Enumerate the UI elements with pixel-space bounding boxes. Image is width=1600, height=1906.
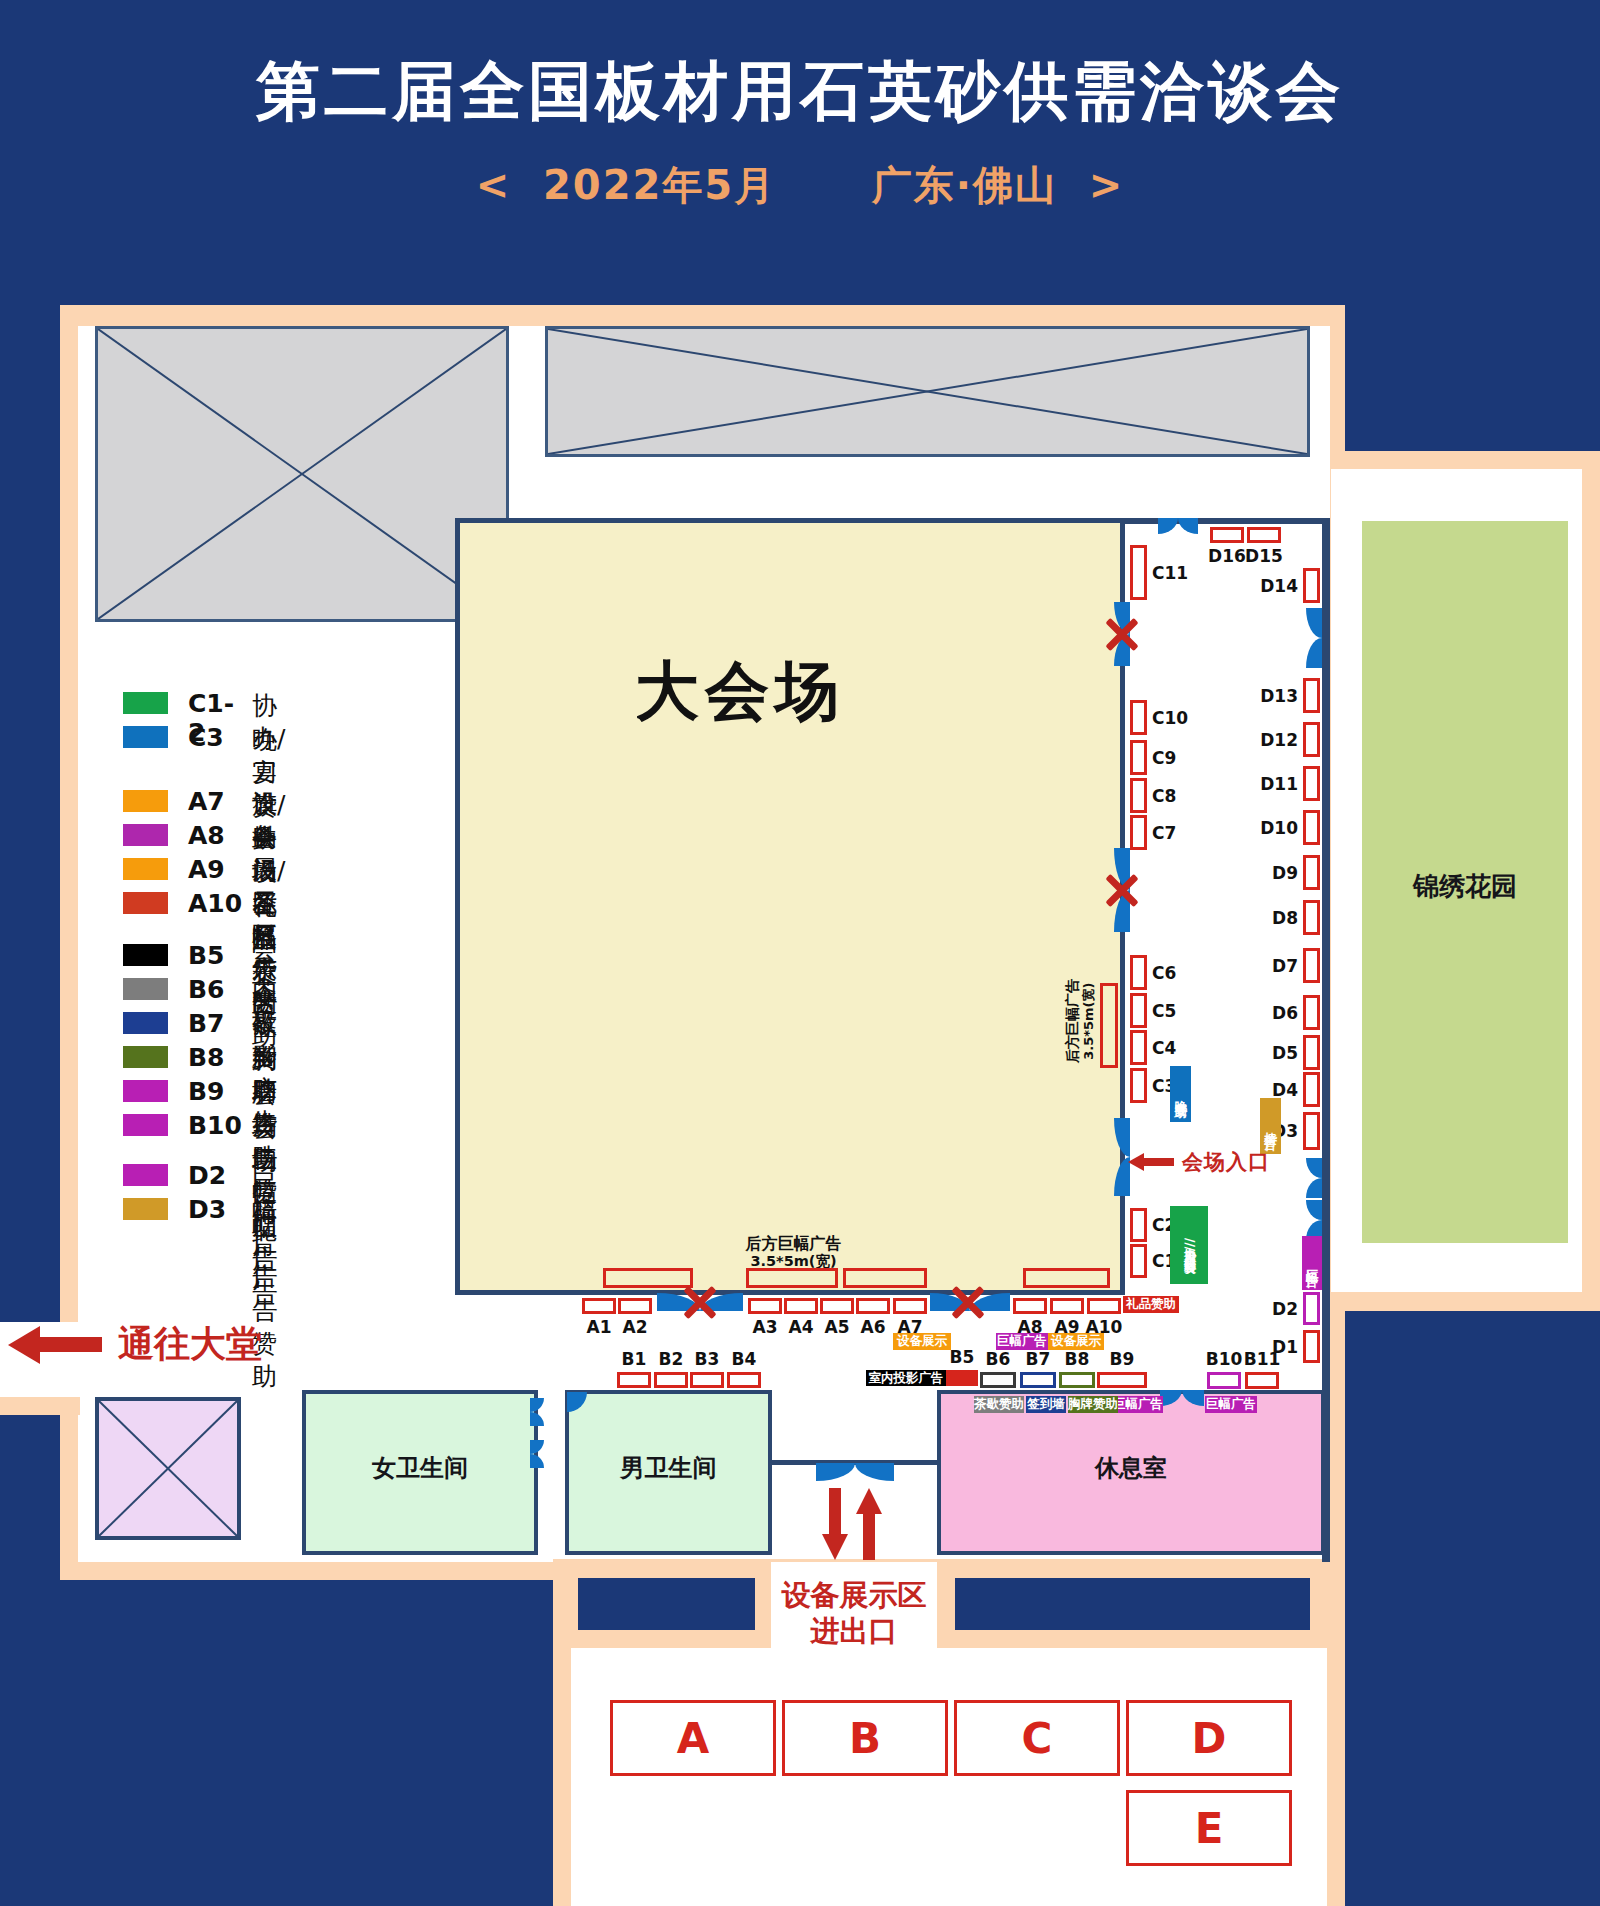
- booth-label-C5: C5: [1152, 1003, 1208, 1020]
- booth-D11: [1303, 766, 1320, 801]
- legend-code: D2: [188, 1161, 226, 1190]
- equipment-area: [571, 1648, 1327, 1906]
- door-icon: [1158, 518, 1198, 534]
- booth-label-D6: D6: [1242, 1005, 1298, 1022]
- diagonal-cross-icon: [98, 329, 506, 619]
- closed-door-x-icon: [1102, 870, 1142, 910]
- booth-label-D12: D12: [1242, 732, 1298, 749]
- legend-code: B8: [188, 1043, 224, 1072]
- door-icon: [1306, 608, 1322, 668]
- booth-B1: [617, 1372, 651, 1388]
- door-leaf: [816, 1463, 855, 1481]
- door-leaf: [530, 1454, 544, 1468]
- booth-label-D11: D11: [1242, 776, 1298, 793]
- booth-label-C6: C6: [1152, 965, 1208, 982]
- legend-color-swatch: [123, 1080, 168, 1102]
- rear-banner-slot: [1023, 1268, 1110, 1288]
- booth-C6: [1130, 955, 1147, 990]
- down-arrow-icon: [822, 1488, 848, 1560]
- zone-box-E: E: [1126, 1790, 1292, 1866]
- booth-label-D4: D4: [1242, 1082, 1298, 1099]
- booth-B7: [1020, 1372, 1056, 1388]
- booth-B5: [946, 1370, 978, 1386]
- door-icon: [567, 1392, 587, 1412]
- legend-color-swatch: [123, 944, 168, 966]
- booth-A5: [820, 1298, 854, 1314]
- room-men-label: 男卫生间: [569, 1452, 768, 1484]
- sponsor-tag: 设备展示: [893, 1333, 951, 1350]
- sponsor-tag: 巨幅广告: [1302, 1236, 1322, 1290]
- up-arrow-icon: [856, 1488, 882, 1560]
- booth-label-C7: C7: [1152, 825, 1208, 842]
- sponsor-tag: 签到墙: [1026, 1396, 1066, 1413]
- booth-A3: [748, 1298, 782, 1314]
- rear-banner-slot: [746, 1268, 838, 1288]
- booth-label-D5: D5: [1242, 1045, 1298, 1062]
- rear-banner-note-line1: 后方巨幅广告: [736, 1234, 851, 1253]
- booth-C2: [1130, 1208, 1147, 1242]
- booth-C7: [1130, 815, 1147, 850]
- legend-code: B9: [188, 1077, 224, 1106]
- booth-label-C9: C9: [1152, 750, 1208, 767]
- equipment-border-right: [1327, 1648, 1345, 1906]
- legend-color-swatch: [123, 1198, 168, 1220]
- door-leaf: [1178, 518, 1198, 534]
- sponsor-tag: 礼品赞助: [1123, 1296, 1179, 1313]
- booth-D2: [1303, 1292, 1320, 1325]
- booth-A8: [1013, 1298, 1047, 1314]
- zone-box-C: C: [954, 1700, 1120, 1776]
- blocked-area-lobby: [95, 1397, 241, 1540]
- sponsor-tag: 茶歇赞助: [974, 1396, 1024, 1413]
- equipment-label-line1: 设备展示区: [771, 1576, 937, 1616]
- rear-banner-note-bottom: 后方巨幅广告 3.5*5m(宽): [736, 1234, 851, 1271]
- booth-A4: [784, 1298, 818, 1314]
- legend-color-swatch: [123, 1164, 168, 1186]
- equipment-border-left: [553, 1648, 571, 1906]
- booth-D9: [1303, 855, 1320, 890]
- rear-banner-slot: [1100, 983, 1118, 1068]
- door-leaf: [1182, 1390, 1204, 1406]
- booth-C11: [1130, 545, 1147, 600]
- booth-D3: [1303, 1112, 1320, 1150]
- door-leaf: [855, 1463, 894, 1481]
- door-icon: [530, 1440, 544, 1468]
- sponsor-tag: 晚宴赞助: [1170, 1066, 1191, 1122]
- legend-color-swatch: [123, 1012, 168, 1034]
- booth-D4: [1303, 1072, 1320, 1107]
- booth-B10: [1207, 1372, 1241, 1389]
- booth-B3: [690, 1372, 724, 1388]
- rear-banner-note-line2: 3.5*5m(宽): [1081, 961, 1097, 1081]
- main-hall: [455, 518, 1125, 1295]
- booth-label-D8: D8: [1242, 910, 1298, 927]
- lobby-label: 通往大堂: [118, 1320, 262, 1369]
- garden: 锦绣花园: [1362, 521, 1568, 1243]
- booth-label-D9: D9: [1242, 865, 1298, 882]
- legend-code: A8: [188, 821, 225, 850]
- legend-code: B10: [188, 1111, 242, 1140]
- door-leaf: [1306, 1178, 1322, 1198]
- bottom-wall-left: [578, 1578, 755, 1630]
- booth-label-D13: D13: [1242, 688, 1298, 705]
- booth-A2: [618, 1298, 652, 1314]
- booth-label-D2: D2: [1242, 1301, 1298, 1318]
- legend-code: D3: [188, 1195, 226, 1224]
- booth-D10: [1303, 810, 1320, 845]
- legend-code: A10: [188, 889, 242, 918]
- booth-D5: [1303, 1035, 1320, 1070]
- hall-entrance-direction: 会场入口: [1128, 1148, 1270, 1176]
- page-title: 第二届全国板材用石英砂供需洽谈会: [0, 48, 1600, 135]
- garden-label: 锦绣花园: [1362, 869, 1568, 904]
- booth-B9: [1097, 1372, 1147, 1388]
- door-leaf: [1306, 1200, 1322, 1220]
- booth-C3: [1130, 1068, 1147, 1103]
- door-leaf: [530, 1412, 544, 1426]
- entrance-left-arrow-icon: [1128, 1153, 1174, 1171]
- legend-color-swatch: [123, 824, 168, 846]
- room-lounge-label: 休息室: [941, 1452, 1321, 1484]
- legend-color-swatch: [123, 1114, 168, 1136]
- legend-code: B5: [188, 941, 224, 970]
- booth-D15: [1247, 527, 1281, 543]
- door-leaf: [1306, 638, 1322, 668]
- legend-color-swatch: [123, 858, 168, 880]
- rear-banner-note-line1: 后方巨幅广告: [1064, 961, 1081, 1081]
- booth-C5: [1130, 993, 1147, 1028]
- room-lounge: 休息室: [937, 1390, 1325, 1555]
- equipment-label-line2: 进出口: [771, 1612, 937, 1652]
- booth-label-D15: D15: [1236, 548, 1292, 565]
- blocked-area-left: [95, 326, 509, 622]
- booth-C4: [1130, 1030, 1147, 1065]
- booth-B8: [1059, 1372, 1095, 1388]
- booth-label-C8: C8: [1152, 788, 1208, 805]
- door-leaf: [1158, 518, 1178, 534]
- main-hall-label: 大会场: [570, 648, 910, 735]
- legend-code: C3: [188, 723, 224, 752]
- legend-code: A7: [188, 787, 225, 816]
- booth-D6: [1303, 995, 1320, 1030]
- booth-label-D14: D14: [1242, 578, 1298, 595]
- booth-D12: [1303, 722, 1320, 757]
- booth-label-C10: C10: [1152, 710, 1208, 727]
- door-icon: [1160, 1390, 1204, 1406]
- legend-code: B7: [188, 1009, 224, 1038]
- booth-B2: [654, 1372, 688, 1388]
- sponsor-tag: 室内投影广告: [866, 1370, 946, 1386]
- booth-A7: [893, 1298, 927, 1314]
- legend-color-swatch: [123, 1046, 168, 1068]
- room-women-label: 女卫生间: [306, 1452, 534, 1484]
- diagonal-cross-icon: [548, 329, 1307, 454]
- booth-D16: [1210, 527, 1244, 543]
- legend-color-swatch: [123, 790, 168, 812]
- sponsor-tag: 胸牌赞助: [1068, 1396, 1118, 1413]
- booth-label-D7: D7: [1242, 958, 1298, 975]
- booth-label-B4: B4: [716, 1351, 772, 1368]
- booth-B6: [980, 1372, 1016, 1388]
- door-icon: [1306, 1200, 1322, 1240]
- booth-D1: [1303, 1330, 1320, 1363]
- door-leaf: [530, 1398, 544, 1412]
- door-leaf: [567, 1392, 587, 1412]
- rear-banner-slot: [843, 1268, 927, 1288]
- sponsor-tag: 巨幅广告: [996, 1333, 1048, 1350]
- booth-A6: [856, 1298, 890, 1314]
- legend-code: B6: [188, 975, 224, 1004]
- sponsor-tag: 设备展示: [1048, 1333, 1104, 1350]
- closed-door-x-icon: [948, 1282, 988, 1322]
- booth-label-A2: A2: [607, 1319, 663, 1336]
- floor-plan-page: 第二届全国板材用石英砂供需洽谈会 < 2022年5月 广东·佛山 > 大会场 锦…: [0, 0, 1600, 1906]
- booth-label-B9: B9: [1094, 1351, 1150, 1368]
- door-leaf: [530, 1440, 544, 1454]
- diagonal-cross-icon: [99, 1401, 237, 1536]
- door-icon: [1306, 1158, 1322, 1198]
- booth-A10: [1087, 1298, 1121, 1314]
- booth-B11: [1245, 1372, 1279, 1389]
- booth-C1: [1130, 1244, 1147, 1278]
- room-women: 女卫生间: [302, 1390, 538, 1555]
- lobby-left-arrow-icon: [8, 1326, 102, 1364]
- booth-D7: [1303, 948, 1320, 983]
- rear-banner-note-side: 后方巨幅广告 3.5*5m(宽): [1064, 961, 1096, 1081]
- booth-C8: [1130, 778, 1147, 813]
- entrance-label: 会场入口: [1182, 1148, 1270, 1176]
- lobby-corridor-border: [0, 1397, 80, 1415]
- booth-label-D1: D1: [1242, 1339, 1298, 1356]
- closed-door-x-icon: [680, 1282, 720, 1322]
- corridor-top-wall: [1125, 518, 1330, 524]
- door-leaf: [1306, 1158, 1322, 1178]
- booth-D14: [1303, 568, 1320, 603]
- closed-door-x-icon: [1102, 614, 1142, 654]
- sponsor-tag: 巨幅广告: [1113, 1396, 1163, 1413]
- room-men: 男卫生间: [565, 1390, 772, 1555]
- legend-color-swatch: [123, 692, 168, 714]
- booth-A1: [582, 1298, 616, 1314]
- door-icon: [530, 1398, 544, 1426]
- booth-C10: [1130, 700, 1147, 735]
- page-subtitle: < 2022年5月 广东·佛山 >: [0, 158, 1600, 213]
- legend-color-swatch: [123, 892, 168, 914]
- sponsor-tag: 协办/刀旗/拱门/资料袋: [1170, 1206, 1208, 1284]
- booth-C9: [1130, 740, 1147, 775]
- equipment-arrows: [822, 1488, 882, 1560]
- sponsor-tag: 椅背广告: [1260, 1098, 1281, 1154]
- booth-label-C11: C11: [1152, 565, 1208, 582]
- booth-label-C4: C4: [1152, 1040, 1208, 1057]
- booth-B4: [727, 1372, 761, 1388]
- lobby-direction: 通往大堂: [8, 1320, 262, 1369]
- legend-color-swatch: [123, 726, 168, 748]
- zone-box-B: B: [782, 1700, 948, 1776]
- door-leaf: [1160, 1390, 1182, 1406]
- door-icon: [816, 1463, 894, 1481]
- zone-box-D: D: [1126, 1700, 1292, 1776]
- booth-A9: [1050, 1298, 1084, 1314]
- legend-code: A9: [188, 855, 225, 884]
- booth-D8: [1303, 900, 1320, 935]
- door-leaf: [1306, 608, 1322, 638]
- sponsor-tag: 巨幅广告: [1205, 1396, 1257, 1413]
- booth-label-D10: D10: [1242, 820, 1298, 837]
- bottom-wall-right: [955, 1578, 1310, 1630]
- booth-D13: [1303, 678, 1320, 713]
- blocked-area-top: [545, 326, 1310, 457]
- zone-box-A: A: [610, 1700, 776, 1776]
- legend-color-swatch: [123, 978, 168, 1000]
